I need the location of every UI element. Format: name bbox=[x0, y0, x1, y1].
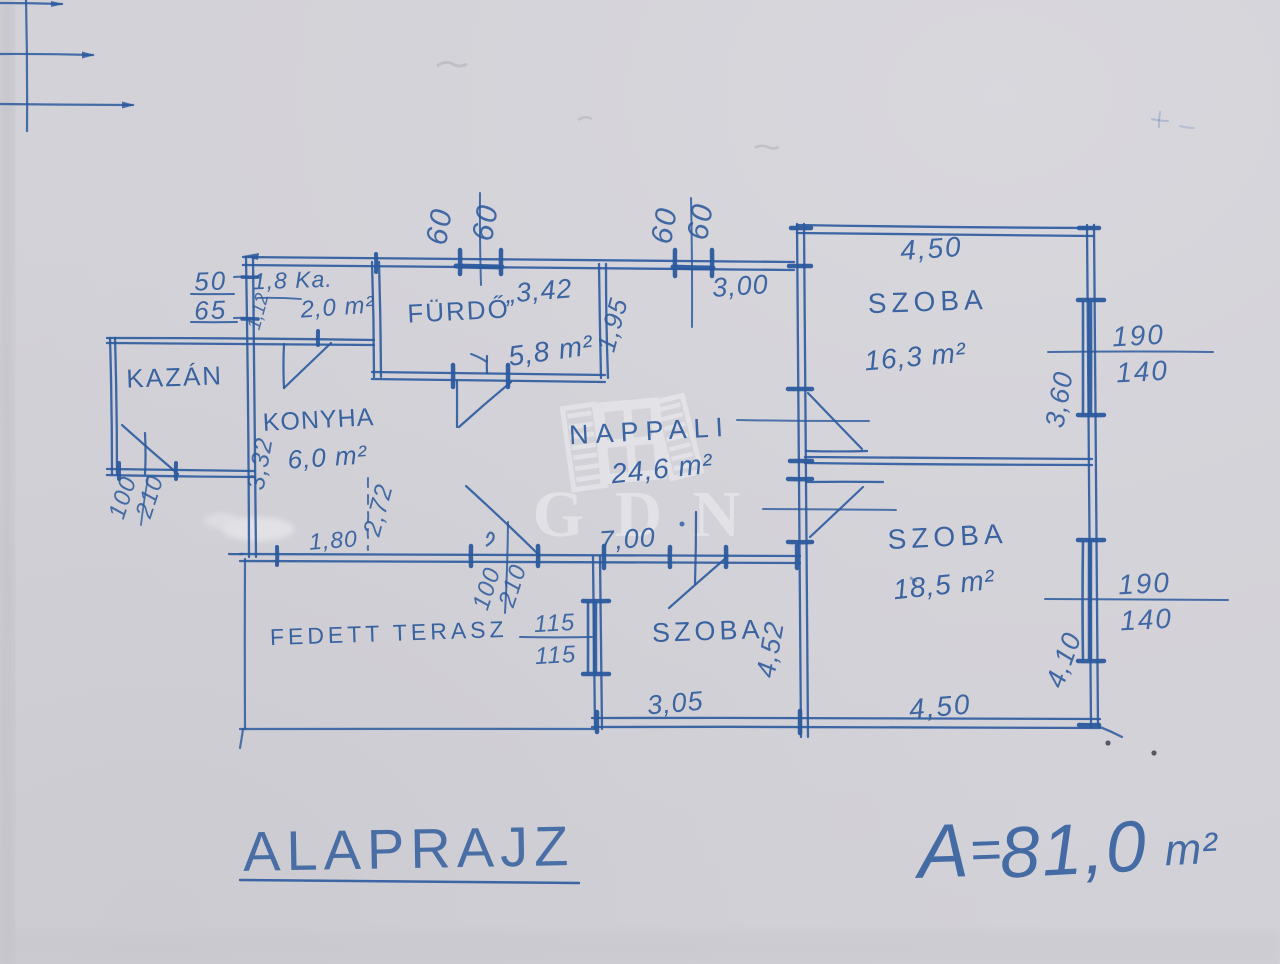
svg-text:81,0: 81,0 bbox=[998, 806, 1150, 894]
svg-text:KAZÁN: KAZÁN bbox=[126, 360, 224, 393]
svg-text:140: 140 bbox=[1115, 355, 1169, 389]
svg-text:A: A bbox=[912, 808, 970, 895]
svg-text:115: 115 bbox=[534, 641, 577, 670]
svg-text:60: 60 bbox=[681, 200, 720, 243]
svg-text:4,50: 4,50 bbox=[908, 688, 973, 724]
svg-text:7,00: 7,00 bbox=[598, 522, 657, 556]
svg-text:„3,42: „3,42 bbox=[504, 273, 574, 309]
svg-text:KONYHA: KONYHA bbox=[262, 403, 375, 437]
svg-text:50: 50 bbox=[194, 265, 228, 296]
svg-text:ALAPRAJZ: ALAPRAJZ bbox=[243, 814, 575, 883]
svg-text:6,0 m²: 6,0 m² bbox=[287, 439, 369, 475]
svg-text:1,80: 1,80 bbox=[308, 525, 358, 554]
svg-text:3,05: 3,05 bbox=[646, 686, 705, 721]
svg-text:115: 115 bbox=[533, 609, 576, 638]
svg-text:190: 190 bbox=[1111, 319, 1165, 353]
svg-text:SZOBA: SZOBA bbox=[887, 518, 1008, 555]
svg-text:SZOBA: SZOBA bbox=[867, 284, 988, 319]
svg-text:65: 65 bbox=[194, 294, 228, 325]
svg-text:190: 190 bbox=[1117, 567, 1171, 601]
svg-text:60: 60 bbox=[420, 205, 459, 248]
svg-text:m²: m² bbox=[1163, 824, 1219, 876]
svg-text:60: 60 bbox=[645, 204, 684, 247]
svg-text:SZOBA: SZOBA bbox=[651, 614, 764, 648]
svg-text:4,50: 4,50 bbox=[899, 231, 964, 266]
svg-text:FÜRDŐ: FÜRDŐ bbox=[407, 293, 511, 328]
svg-text:3,00: 3,00 bbox=[711, 269, 770, 303]
svg-text:2,0 m²: 2,0 m² bbox=[299, 291, 376, 323]
svg-text:=: = bbox=[969, 819, 1003, 880]
svg-text:140: 140 bbox=[1119, 603, 1173, 637]
svg-text:1,8 Ka.: 1,8 Ka. bbox=[252, 266, 333, 295]
svg-text:60: 60 bbox=[466, 201, 505, 244]
